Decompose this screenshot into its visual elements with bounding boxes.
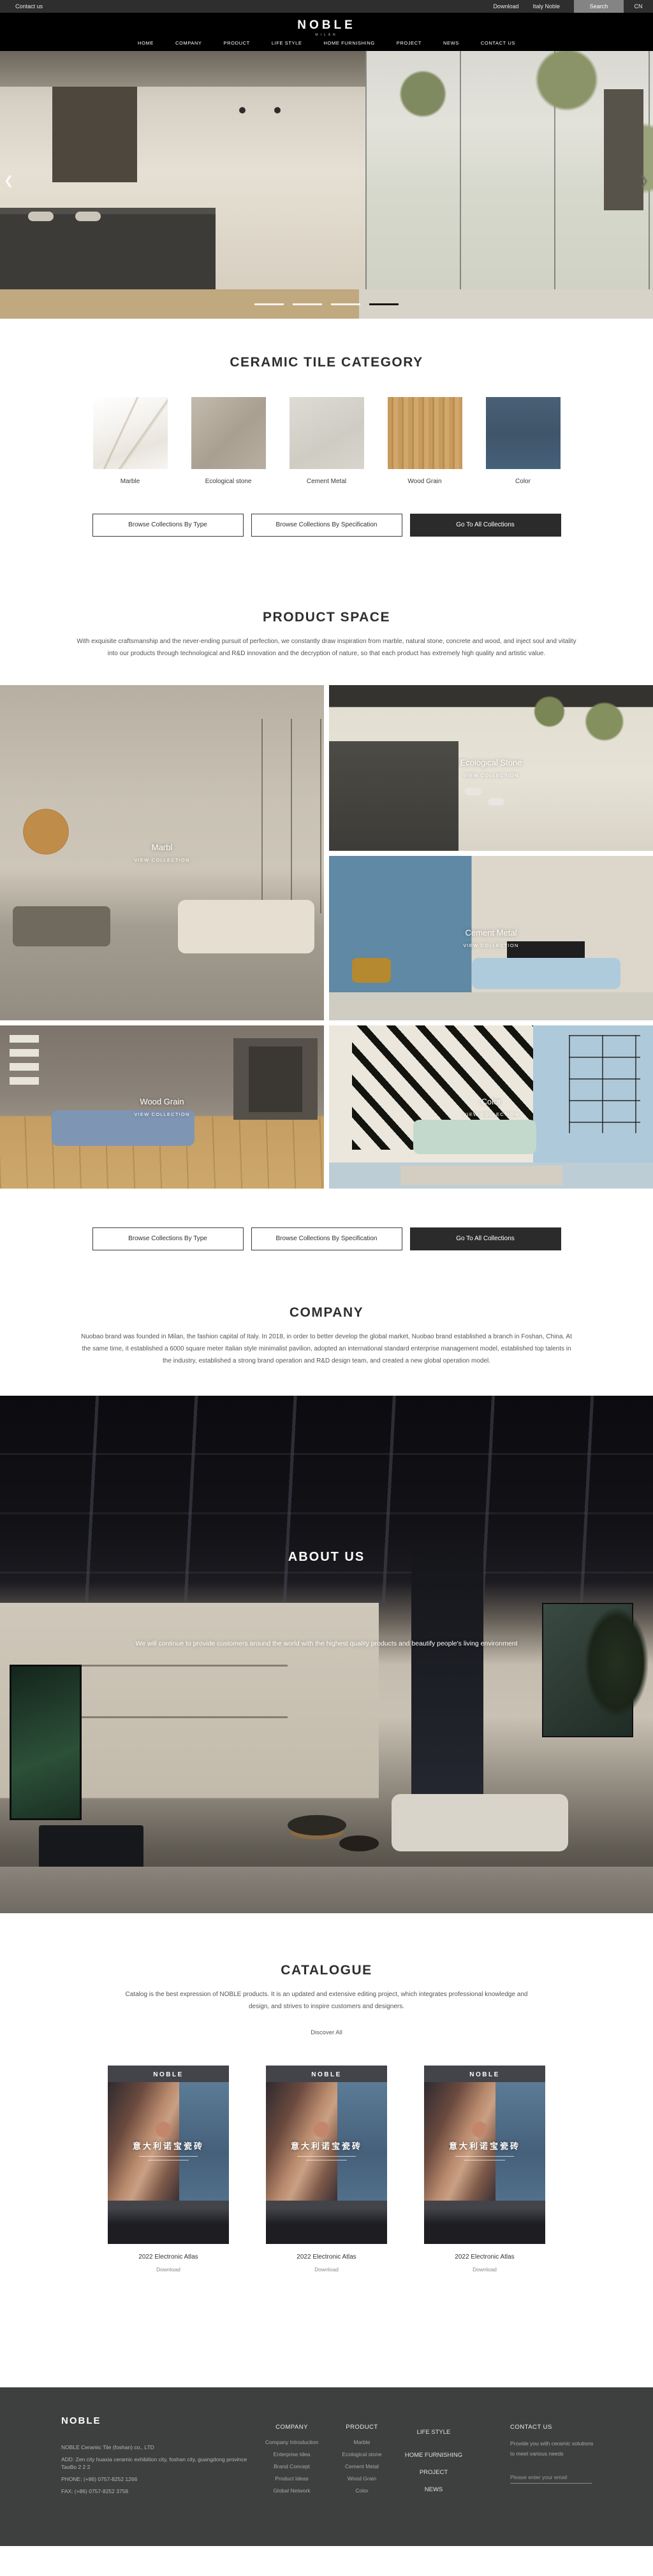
footer-column-contact: CONTACT US Provide you with ceramic solu… (510, 2424, 594, 2484)
grid-tile-label: Color VIEW COLLECTION (329, 1097, 653, 1117)
top-utility-bar: Contact us Download Italy Noble Search C… (0, 0, 653, 13)
language-switch[interactable]: CN (624, 3, 653, 10)
cover-image-part (464, 2160, 505, 2160)
grid-tile-label: Ecological Stone VIEW COLLECTION (329, 758, 653, 778)
grid-image-part (13, 906, 110, 946)
slider-indicators (254, 303, 399, 305)
nav-company[interactable]: COMPANY (175, 40, 202, 46)
view-collection-link[interactable]: VIEW COLLECTION (329, 943, 653, 948)
cover-image-part (297, 2156, 356, 2157)
nav-home-furnishing[interactable]: HOME FURNISHING (324, 40, 375, 46)
cover-image-part (266, 2208, 387, 2244)
newsletter-email-input[interactable] (510, 2471, 592, 2484)
footer-column-title[interactable]: CONTACT US (510, 2424, 594, 2431)
nav-home[interactable]: HOME (138, 40, 154, 46)
footer-link-news[interactable]: NEWS (399, 2481, 469, 2498)
category-label: Wood Grain (388, 478, 462, 485)
nav-product[interactable]: PRODUCT (224, 40, 250, 46)
footer-column-title[interactable]: COMPANY (255, 2424, 328, 2431)
grid-tile-name: Cement Metal (329, 928, 653, 937)
footer-column-product: PRODUCT Marble Ecological stone Cement M… (328, 2424, 395, 2497)
category-item-cement-metal: Cement Metal (290, 397, 364, 485)
catalogue-item-3: NOBLE 意大利诺宝瓷砖 2022 Electronic Atlas Down… (424, 2066, 545, 2273)
cover-image-part (455, 2156, 514, 2157)
footer-column-company: COMPANY Company Introduction Enterprise … (255, 2424, 328, 2497)
category-item-ecological-stone: Ecological stone (191, 397, 266, 485)
footer-link[interactable]: Wood Grain (328, 2473, 395, 2485)
site-footer: NOBLE NOBLE Ceramic Tile (foshan) co., L… (0, 2387, 653, 2546)
site-logo[interactable]: NOBLE (0, 13, 653, 33)
ecological-stone-swatch-image[interactable] (191, 397, 266, 469)
italy-noble-link[interactable]: Italy Noble (532, 3, 560, 10)
hero-image-part (75, 212, 101, 221)
about-image-part (10, 1665, 82, 1820)
category-buttons-row: Browse Collections By Type Browse Collec… (0, 514, 653, 537)
footer-address: ADD: Zen city huaxia ceramic exhibition … (61, 2456, 259, 2471)
about-us-paragraph: We will continue to provide customers ar… (110, 1637, 543, 1651)
view-collection-link[interactable]: VIEW COLLECTION (0, 857, 324, 863)
cover-image-part (108, 2208, 229, 2244)
hero-image-part (604, 89, 643, 210)
category-swatches: Marble Ecological stone Cement Metal Woo… (0, 397, 653, 485)
hero-image-part (274, 107, 281, 113)
cover-logo: NOBLE (424, 2071, 545, 2078)
slider-dot-4-active[interactable] (369, 303, 399, 305)
footer-link-project[interactable]: PROJECT (399, 2464, 469, 2481)
cover-image-part (148, 2160, 189, 2160)
category-label: Ecological stone (191, 478, 266, 485)
slider-dot-2[interactable] (293, 303, 322, 305)
catalogue-caption: 2022 Electronic Atlas (266, 2254, 387, 2261)
grid-tile-ecological-stone[interactable]: Ecological Stone VIEW COLLECTION (329, 685, 653, 851)
catalogue-caption: 2022 Electronic Atlas (424, 2254, 545, 2261)
go-to-all-collections-button[interactable]: Go To All Collections (410, 1227, 561, 1250)
about-image-part (39, 1825, 143, 1872)
category-label: Marble (93, 478, 168, 485)
grid-tile-name: Wood Grain (0, 1097, 324, 1106)
catalogue-caption: 2022 Electronic Atlas (108, 2254, 229, 2261)
cover-image-part (139, 2156, 198, 2157)
browse-by-specification-button[interactable]: Browse Collections By Specification (251, 514, 402, 537)
about-image-part (411, 1551, 483, 1800)
color-swatch-image[interactable] (486, 397, 561, 469)
slider-dot-3[interactable] (331, 303, 360, 305)
hero-image-part (239, 107, 246, 113)
grid-tile-color[interactable]: Color VIEW COLLECTION (329, 1025, 653, 1189)
footer-company-info: NOBLE Ceramic Tile (foshan) co., LTD ADD… (61, 2443, 259, 2500)
ceramic-tile-category-section: CERAMIC TILE CATEGORY Marble Ecological … (0, 319, 653, 537)
grid-tile-name: Color (329, 1097, 653, 1106)
catalogue-download-link[interactable]: Download (424, 2266, 545, 2273)
footer-column-links: LIFE STYLE HOME FURNISHING PROJECT NEWS (399, 2424, 469, 2498)
catalogue-cover-image[interactable]: NOBLE 意大利诺宝瓷砖 (108, 2066, 229, 2244)
main-nav: HOME COMPANY PRODUCT LIFE STYLE HOME FUR… (0, 40, 653, 46)
category-item-color: Color (486, 397, 561, 485)
nav-project[interactable]: PROJECT (397, 40, 422, 46)
grid-image-part (178, 900, 314, 953)
cover-image-part (306, 2160, 347, 2160)
grid-image-part (329, 992, 653, 1020)
catalogue-cover-image[interactable]: NOBLE 意大利诺宝瓷砖 (266, 2066, 387, 2244)
site-logo-subtitle: MILAN (0, 33, 653, 37)
product-space-paragraph: With exquisite craftsmanship and the nev… (75, 635, 578, 660)
search-button[interactable]: Search (574, 0, 624, 13)
grid-image-part (465, 788, 481, 795)
catalogue-cover-image[interactable]: NOBLE 意大利诺宝瓷砖 (424, 2066, 545, 2244)
footer-phone: PHONE: (+86) 0757-8252 1266 (61, 2475, 259, 2483)
category-section-title: CERAMIC TILE CATEGORY (0, 355, 653, 370)
wood-grain-swatch-image[interactable] (388, 397, 462, 469)
footer-contact-text: Provide you with ceramic solutions to me… (510, 2438, 594, 2459)
footer-column-title[interactable]: PRODUCT (328, 2424, 395, 2431)
cover-logo: NOBLE (108, 2071, 229, 2078)
browse-by-specification-button[interactable]: Browse Collections By Specification (251, 1227, 402, 1250)
catalogue-download-link[interactable]: Download (108, 2266, 229, 2273)
cover-title: 意大利诺宝瓷砖 (266, 2139, 387, 2152)
grid-tile-label: Wood Grain VIEW COLLECTION (0, 1097, 324, 1117)
footer-link-life-style[interactable]: LIFE STYLE (399, 2429, 469, 2436)
footer-link[interactable]: Cement Metal (328, 2461, 395, 2473)
product-space-buttons-row: Browse Collections By Type Browse Collec… (0, 1227, 653, 1250)
grid-tile-name: Ecological Stone (329, 758, 653, 767)
footer-link[interactable]: Company Introduction (255, 2436, 328, 2449)
grid-image-part (352, 958, 391, 983)
about-us-title: ABOUT US (0, 1550, 653, 1565)
cover-title: 意大利诺宝瓷砖 (424, 2139, 545, 2152)
contact-us-link[interactable]: Contact us (15, 3, 43, 10)
nav-contact-us[interactable]: CONTACT US (481, 40, 515, 46)
about-image-part (0, 1867, 653, 1913)
about-image-part (562, 1572, 653, 1799)
nav-news[interactable]: NEWS (443, 40, 459, 46)
nav-life-style[interactable]: LIFE STYLE (272, 40, 302, 46)
cover-logo: NOBLE (266, 2071, 387, 2078)
marble-swatch-image[interactable] (93, 397, 168, 469)
slider-next-icon[interactable]: ❯ (640, 174, 649, 187)
discover-all-link[interactable]: Discover All (0, 2029, 653, 2036)
cover-image-part (424, 2208, 545, 2244)
hero-image-part (52, 87, 137, 182)
category-item-marble: Marble (93, 397, 168, 485)
grid-tile-name: Marbl (0, 843, 324, 852)
category-label: Cement Metal (290, 478, 364, 485)
cement-metal-swatch-image[interactable] (290, 397, 364, 469)
product-space-grid: Marbl VIEW COLLECTION Ecological Stone V… (0, 685, 653, 1189)
grid-tile-wood-grain[interactable]: Wood Grain VIEW COLLECTION (0, 1025, 324, 1189)
hero-slider: ❮ ❯ (0, 51, 653, 319)
slider-prev-icon[interactable]: ❮ (4, 174, 13, 187)
catalogue-item-1: NOBLE 意大利诺宝瓷砖 2022 Electronic Atlas Down… (108, 2066, 229, 2273)
about-image-part (392, 1794, 568, 1851)
product-space-section: PRODUCT SPACE With exquisite craftsmansh… (0, 537, 653, 1250)
download-link[interactable]: Download (493, 3, 518, 10)
grid-image-part (413, 1120, 536, 1154)
about-image-part (0, 1396, 653, 1603)
catalogue-paragraph: Catalog is the best expression of NOBLE … (122, 1988, 531, 2013)
hero-image-part (28, 212, 54, 221)
footer-link[interactable]: Color (328, 2485, 395, 2497)
footer-link[interactable]: Brand Concept (255, 2461, 328, 2473)
view-collection-link[interactable]: VIEW COLLECTION (329, 772, 653, 778)
grid-tile-label: Marbl VIEW COLLECTION (0, 843, 324, 863)
catalogue-covers: NOBLE 意大利诺宝瓷砖 2022 Electronic Atlas Down… (0, 2066, 653, 2273)
footer-link[interactable]: Enterprise Idea (255, 2449, 328, 2461)
footer-link[interactable]: Product Ideas (255, 2473, 328, 2485)
company-title: COMPANY (0, 1305, 653, 1321)
slider-dot-1[interactable] (254, 303, 284, 305)
grid-image-part (233, 719, 324, 913)
grid-tile-label: Cement Metal VIEW COLLECTION (329, 928, 653, 948)
footer-link[interactable]: Global Network (255, 2485, 328, 2497)
grid-image-part (10, 1035, 39, 1090)
about-us-banner: ABOUT US We will continue to provide cus… (0, 1396, 653, 1913)
go-to-all-collections-button[interactable]: Go To All Collections (410, 514, 561, 537)
company-paragraph: Nuobao brand was founded in Milan, the f… (78, 1331, 575, 1367)
catalogue-download-link[interactable]: Download (266, 2266, 387, 2273)
grid-tile-marble[interactable]: Marbl VIEW COLLECTION (0, 685, 324, 1020)
footer-link-home-furnishing[interactable]: HOME FURNISHING (399, 2447, 469, 2464)
catalogue-section: CATALOGUE Catalog is the best expression… (0, 1913, 653, 2273)
about-image-part (339, 1835, 378, 1851)
hero-image-part (0, 51, 379, 87)
view-collection-link[interactable]: VIEW COLLECTION (329, 1111, 653, 1117)
grid-image-part (472, 958, 621, 989)
footer-company-name: NOBLE Ceramic Tile (foshan) co., LTD (61, 2443, 259, 2451)
category-label: Color (486, 478, 561, 485)
footer-logo: NOBLE (61, 2415, 101, 2426)
category-item-wood-grain: Wood Grain (388, 397, 462, 485)
browse-by-type-button[interactable]: Browse Collections By Type (92, 1227, 244, 1250)
browse-by-type-button[interactable]: Browse Collections By Type (92, 514, 244, 537)
view-collection-link[interactable]: VIEW COLLECTION (0, 1111, 324, 1117)
footer-link[interactable]: Marble (328, 2436, 395, 2449)
grid-tile-cement-metal[interactable]: Cement Metal VIEW COLLECTION (329, 856, 653, 1020)
topbar-right: Download Italy Noble Search CN (493, 0, 653, 13)
footer-fax: FAX: (+86) 0757-8252 3758 (61, 2487, 259, 2495)
about-image-part (288, 1815, 346, 1835)
product-space-title: PRODUCT SPACE (0, 610, 653, 625)
cover-title: 意大利诺宝瓷砖 (108, 2139, 229, 2152)
grid-image-part (400, 1166, 562, 1185)
grid-image-part (488, 798, 504, 806)
grid-image-part (569, 1035, 640, 1133)
catalogue-item-2: NOBLE 意大利诺宝瓷砖 2022 Electronic Atlas Down… (266, 2066, 387, 2273)
footer-link[interactable]: Ecological stone (328, 2449, 395, 2461)
site-header: NOBLE MILAN HOME COMPANY PRODUCT LIFE ST… (0, 13, 653, 51)
company-section: COMPANY Nuobao brand was founded in Mila… (0, 1250, 653, 1367)
catalogue-title: CATALOGUE (0, 1963, 653, 1978)
